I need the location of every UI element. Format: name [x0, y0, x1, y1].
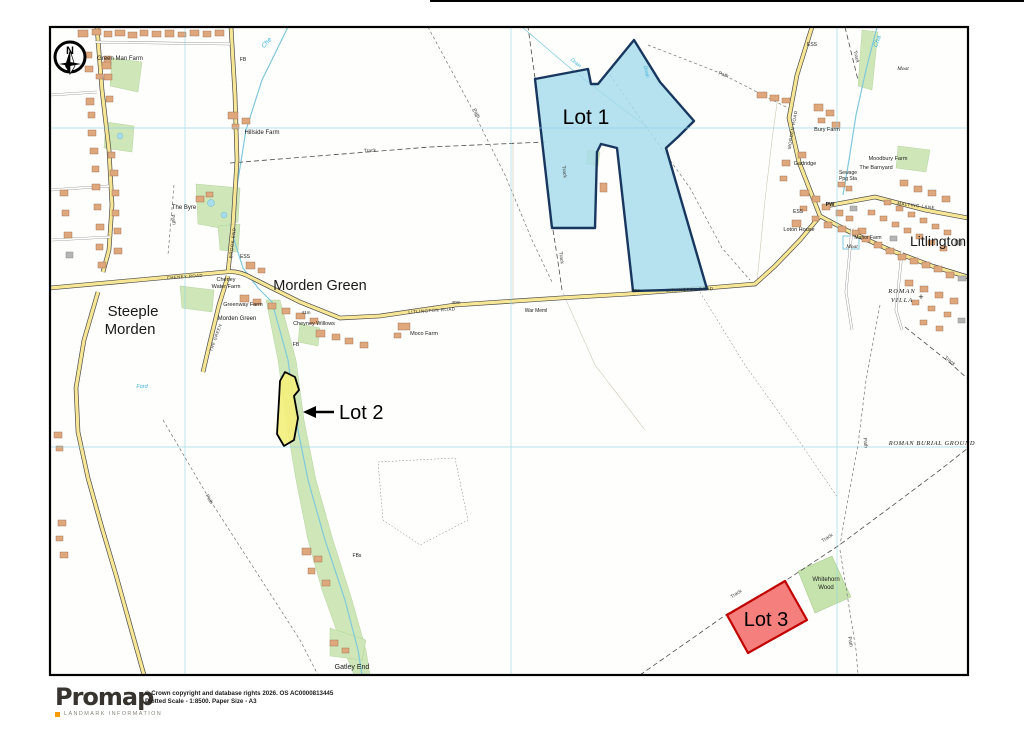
label-roman-villa-2: VILLA — [891, 297, 913, 304]
label-moco-farm: Moco Farm — [410, 331, 438, 337]
label-greenway-farm: Greenway Farm — [223, 302, 263, 308]
landmark-tagline-text: LANDMARK INFORMATION — [64, 711, 162, 717]
label-green-man-farm: Green Man Farm — [97, 56, 143, 62]
label-cheney-water-2: Water Farm — [212, 284, 241, 290]
label-fb-2: FB — [293, 342, 300, 348]
promap-export-page: Lot 1 Lot 2 Lot 3 Steeple Morden Morden … — [0, 0, 1024, 747]
label-the-byre: The Byre — [172, 205, 197, 211]
landmark-orange-square-icon — [55, 712, 60, 717]
label-cheney-water-1: Cheney — [217, 277, 236, 283]
footer: Promap LANDMARK INFORMATION © Crown copy… — [55, 685, 955, 735]
label-hillside-farm: Hillside Farm — [244, 130, 279, 136]
label-morden-green-small: Morden Green — [218, 316, 257, 322]
label-war-meml: War Meml — [525, 308, 548, 314]
label-roman-burial-ground: ROMAN BURIAL GROUND — [888, 440, 975, 447]
lot-3-label: Lot 3 — [744, 609, 788, 631]
label-sewage-2: Ppg Sta — [839, 176, 857, 182]
label-moat-2: Moat — [896, 66, 909, 72]
label-ford: Ford — [136, 384, 148, 390]
label-track-1: Track — [364, 148, 377, 155]
landmark-tagline: LANDMARK INFORMATION — [55, 711, 955, 717]
label-litlington: Litlington — [910, 233, 966, 249]
label-fb-1: FB — [240, 57, 247, 63]
lot-1-label: Lot 1 — [563, 106, 610, 129]
map-canvas: Lot 1 Lot 2 Lot 3 Steeple Morden Morden … — [0, 0, 1024, 747]
north-compass: N — [55, 42, 85, 74]
label-loton-house: Loton House — [783, 227, 814, 233]
label-pw: PW — [826, 202, 836, 208]
label-steeple-1: Steeple — [108, 303, 159, 320]
label-path-5: Path — [861, 437, 868, 448]
label-morden-green: Morden Green — [273, 278, 367, 294]
copyright-block: © Crown copyright and database rights 20… — [145, 690, 333, 706]
label-whitehorn-1: Whitehorn — [812, 577, 839, 583]
label-manor-farm: Manor Farm — [854, 235, 881, 241]
label-spot-40b: 40m — [632, 288, 641, 293]
label-spot-40a: 40m — [452, 300, 461, 305]
label-ess-3: ESS — [240, 254, 251, 260]
lot-2-label: Lot 2 — [339, 402, 383, 424]
lot-2-polygon — [277, 372, 299, 446]
label-the-barnyard: The Barnyard — [859, 165, 892, 171]
roman-villa-cross-icon: + — [918, 292, 923, 302]
label-bury-farm: Bury Farm — [814, 127, 840, 133]
label-ess-1: ESS — [807, 42, 818, 48]
label-fbs: FBs — [353, 553, 362, 559]
copyright-line-2: Plotted Scale - 1:8500. Paper Size - A3 — [145, 698, 333, 706]
label-roman-villa-1: ROMAN — [887, 288, 915, 295]
label-moodbury-farm: Moodbury Farm — [869, 156, 908, 162]
label-gadridge: Gadridge — [794, 161, 817, 167]
label-gatley-end: Gatley End — [335, 664, 370, 671]
label-moat-1: Moat — [845, 244, 858, 250]
label-whitehorn-2: Wood — [818, 585, 834, 591]
label-ess-2: ESS — [793, 209, 804, 215]
label-spot-41: 41m — [302, 310, 311, 315]
label-steeple-2: Morden — [105, 321, 156, 338]
label-cheyney-willows: Cheyney Willows — [293, 321, 335, 327]
copyright-line-1: © Crown copyright and database rights 20… — [145, 690, 333, 698]
